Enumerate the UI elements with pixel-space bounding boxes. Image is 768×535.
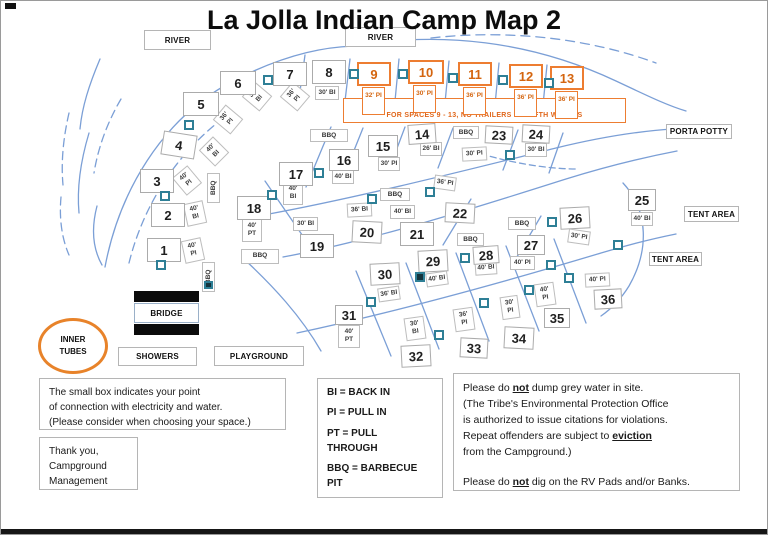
- page-title: La Jolla Indian Camp Map 2: [1, 5, 767, 36]
- site-24-box: 24: [522, 124, 551, 143]
- utility-connection-box: [434, 330, 444, 340]
- connection-note-box: The small box indicates your point of co…: [39, 378, 286, 430]
- site-4-box: 4: [160, 130, 197, 159]
- connection-note-line2: of connection with electricity and water…: [49, 400, 276, 415]
- legend-pull-in: PI = PULL IN: [327, 405, 433, 420]
- utility-connection-box: [546, 260, 556, 270]
- site-20-size: 36' BI: [347, 202, 373, 218]
- site-31-size: 40' PT: [338, 325, 360, 348]
- site-21-size: 40' BI: [390, 205, 415, 219]
- site-18-size: 40' PT: [242, 219, 262, 242]
- site-6-box: 6: [220, 71, 256, 95]
- utility-connection-box: [366, 297, 376, 307]
- site-31-box: 31: [335, 305, 363, 325]
- utility-connection-box: [398, 69, 408, 79]
- site-26-size: 30' PI: [567, 229, 591, 246]
- site-19-box: 19: [300, 234, 334, 258]
- site-20-box: 20: [351, 220, 382, 244]
- thanks-line1: Thank you,: [49, 444, 128, 459]
- utility-connection-box: [267, 190, 277, 200]
- site-15-size: 30' PI: [378, 157, 400, 171]
- bbq-pit-label: BBQ: [457, 233, 484, 246]
- site-9-size: 32' PI: [362, 87, 385, 115]
- site-27-size: 40' PI: [510, 256, 535, 270]
- utility-connection-box: [448, 73, 458, 83]
- inner-tubes-line1: INNER: [61, 334, 86, 346]
- utility-connection-box: [498, 75, 508, 85]
- site-23-box: 23: [485, 125, 514, 144]
- site-1-box: 1: [147, 238, 181, 262]
- site-12-box: 12: [509, 64, 543, 88]
- inner-tubes-line2: TUBES: [59, 346, 86, 358]
- site-35-box: 35: [544, 308, 570, 328]
- site-23-size: 30' PI: [462, 146, 487, 162]
- site-14-box: 14: [407, 123, 436, 145]
- utility-connection-box: [613, 240, 623, 250]
- utility-connection-box: [184, 120, 194, 130]
- site-16-box: 16: [329, 149, 359, 171]
- site-29-box: 29: [417, 249, 448, 273]
- legend-pull-through: PT = PULL THROUGH: [327, 426, 433, 456]
- site-36-size: 40' PI: [585, 272, 610, 288]
- site-34-size: 30' PI: [499, 295, 520, 320]
- site-11-box: 11: [458, 62, 492, 86]
- rules-line6: Please do not dig on the RV Pads and/or …: [463, 474, 730, 490]
- site-2-box: 2: [151, 203, 185, 227]
- site-9-box: 9: [357, 62, 391, 86]
- connection-note-line1: The small box indicates your point: [49, 385, 276, 400]
- site-13-box: 13: [550, 66, 584, 90]
- utility-connection-box: [524, 285, 534, 295]
- legend-back-in: BI = BACK IN: [327, 385, 433, 400]
- site-16-size: 40' BI: [332, 170, 354, 184]
- legend-box: BI = BACK IN PI = PULL IN PT = PULL THRO…: [317, 378, 443, 498]
- bbq-pit-label: BBQ: [508, 217, 536, 230]
- connection-note-line3: (Please consider when choosing your spac…: [49, 415, 276, 430]
- site-7-box: 7: [273, 62, 307, 86]
- utility-connection-box: [425, 187, 435, 197]
- site-32-box: 32: [400, 344, 431, 368]
- site-28-box: 28: [472, 245, 499, 265]
- site-33-box: 33: [459, 337, 488, 358]
- utility-connection-box: [160, 191, 170, 201]
- legend-bbq: BBQ = BARBECUE PIT: [327, 461, 433, 491]
- thanks-line2: Campground: [49, 459, 128, 474]
- utility-connection-box: [367, 194, 377, 204]
- utility-connection-box: [156, 260, 166, 270]
- inner-tubes-area: INNER TUBES: [38, 318, 108, 374]
- scan-edge: [1, 529, 768, 535]
- utility-connection-box: [263, 75, 273, 85]
- utility-connection-box: [505, 150, 515, 160]
- bridge-deck-bottom: [134, 324, 199, 335]
- utility-connection-box: [314, 168, 324, 178]
- bridge-label: BRIDGE: [134, 303, 199, 323]
- utility-connection-box: [479, 298, 489, 308]
- site-26-box: 26: [559, 206, 590, 230]
- utility-connection-box: [204, 281, 213, 289]
- site-12-size: 36' PI: [514, 89, 537, 117]
- camp-map-page: La Jolla Indian Camp Map 2: [0, 0, 768, 535]
- site-22-box: 22: [444, 202, 475, 224]
- bbq-pit-label: BBQ: [207, 173, 220, 203]
- utility-connection-box: [349, 69, 359, 79]
- tent-area-label: TENT AREA: [649, 252, 702, 266]
- rules-line4: Repeat offenders are subject to eviction: [463, 428, 730, 444]
- site-3-box: 3: [140, 169, 174, 193]
- site-34-box: 34: [503, 326, 534, 350]
- bbq-pit-label: BBQ: [310, 129, 348, 142]
- rules-line3: is authorized to issue citations for vio…: [463, 412, 730, 428]
- site-13-size: 36' PI: [555, 91, 578, 119]
- site-30-size: 36' BI: [377, 286, 401, 303]
- site-5-box: 5: [183, 92, 219, 116]
- site-29-size: 40' BI: [425, 271, 449, 288]
- site-22-size: 36' PI: [433, 175, 457, 192]
- site-36-box: 36: [593, 288, 622, 309]
- site-24-size: 30' BI: [525, 143, 547, 157]
- bbq-pit-label: BBQ: [380, 188, 410, 201]
- utility-connection-box: [544, 78, 554, 88]
- site-33-size: 36' PI: [453, 307, 476, 332]
- utility-connection-box: [564, 273, 574, 283]
- rules-line5: from the Campground.): [463, 444, 730, 460]
- site-11-size: 36' PI: [463, 87, 486, 115]
- bbq-pit-label: BBQ: [241, 249, 279, 264]
- site-19-size: 30' BI: [293, 217, 318, 231]
- site-25-size: 40' BI: [631, 212, 653, 226]
- rules-line1: Please do not dump grey water in site.: [463, 380, 730, 396]
- rules-line2: (The Tribe's Environmental Protection Of…: [463, 396, 730, 412]
- utility-connection-box: [415, 272, 425, 282]
- rules-box: Please do not dump grey water in site. (…: [453, 373, 740, 491]
- site-25-box: 25: [628, 189, 656, 211]
- thanks-box: Thank you, Campground Management: [39, 437, 138, 490]
- tent-area-label: TENT AREA: [684, 206, 739, 222]
- bridge-deck-top: [134, 291, 199, 302]
- utility-connection-box: [547, 217, 557, 227]
- porta-potty-label: PORTA POTTY: [666, 124, 732, 139]
- site-15-box: 15: [368, 135, 398, 157]
- bbq-pit-label: BBQ: [453, 126, 479, 139]
- site-27-box: 27: [517, 235, 545, 255]
- utility-connection-box: [460, 253, 470, 263]
- site-14-size: 26' BI: [420, 142, 442, 156]
- site-10-size: 30' PI: [413, 85, 436, 113]
- site-21-box: 21: [400, 222, 434, 246]
- site-32-size: 30' BI: [404, 316, 427, 341]
- site-8-size: 30' BI: [315, 86, 339, 100]
- site-17-box: 17: [279, 162, 313, 186]
- site-18-box: 18: [237, 196, 271, 220]
- showers-label: SHOWERS: [118, 347, 197, 366]
- site-35-size: 40' PI: [534, 282, 557, 307]
- playground-label: PLAYGROUND: [214, 346, 304, 366]
- site-8-box: 8: [312, 60, 346, 84]
- thanks-line3: Management: [49, 474, 128, 489]
- site-30-box: 30: [369, 262, 400, 286]
- site-10-box: 10: [408, 60, 444, 84]
